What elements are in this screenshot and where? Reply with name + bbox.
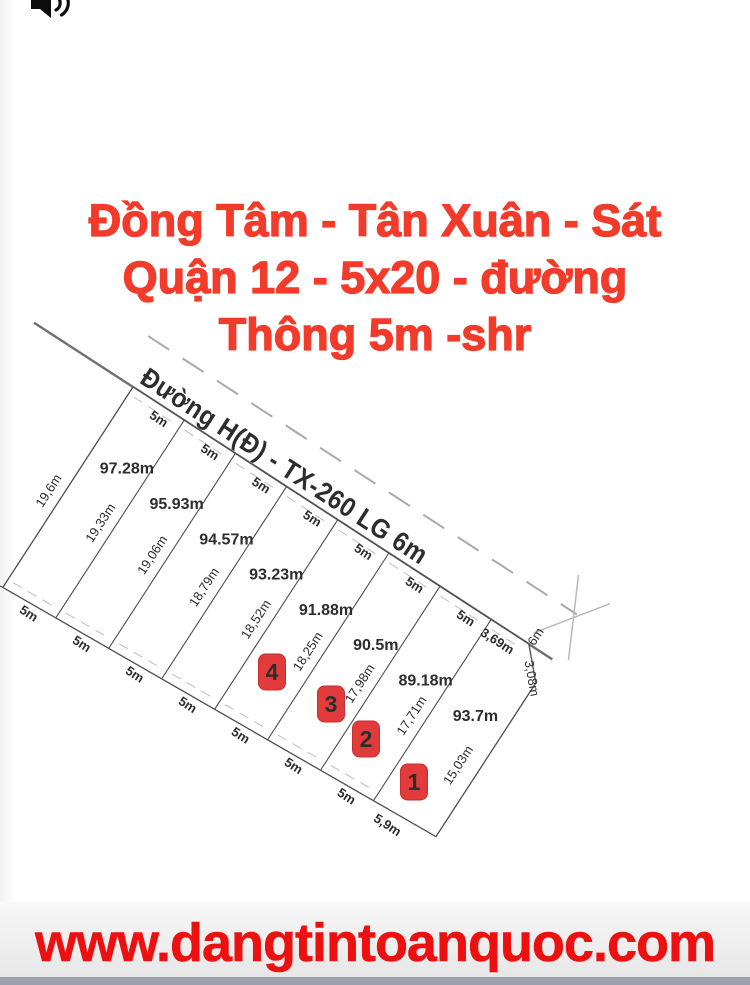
sound-wave-large	[62, 0, 69, 15]
road-end-tick-2	[534, 578, 610, 659]
bottom-bar	[0, 977, 750, 985]
sound-wave-small	[56, 0, 60, 10]
badge-4: 4	[259, 654, 286, 690]
badge-2: 2	[353, 721, 380, 757]
plot-area-label: 91.88m	[299, 602, 353, 619]
plot-area-label: 95.93m	[149, 496, 203, 513]
plot-area-label: 97.28m	[100, 461, 154, 478]
plot-area-label: 90.5m	[353, 637, 398, 654]
plot-area-label: 93.7m	[453, 708, 498, 725]
website-url: www.dangtintoanquoc.com	[0, 912, 750, 974]
plot-area-label: 89.18m	[398, 673, 452, 690]
badge-number: 4	[266, 659, 279, 685]
page: Đồng Tâm - Tân Xuân - Sát Quận 12 - 5x20…	[0, 0, 750, 985]
badge-1: 1	[401, 764, 428, 800]
title-line-2: Quận 12 - 5x20 - đường	[0, 249, 750, 306]
plot-diagram: Đường H(Đ) - TX-260 LG 6m 6m 5m 5m 5m 5m…	[0, 310, 750, 910]
speaker-icon-svg	[29, 0, 75, 21]
plot-area-label: 93.23m	[249, 567, 303, 584]
badge-number: 2	[360, 726, 373, 752]
title-line-1: Đồng Tâm - Tân Xuân - Sát	[0, 192, 750, 249]
badge-3: 3	[318, 686, 345, 722]
badge-number: 1	[408, 769, 421, 795]
badge-number: 3	[325, 691, 338, 717]
bottom-line-extension	[0, 571, 3, 589]
speaker-body	[31, 0, 51, 18]
footer-strip: www.dangtintoanquoc.com	[0, 902, 750, 977]
speaker-icon[interactable]	[29, 0, 75, 21]
plot-area-label: 94.57m	[199, 531, 253, 548]
